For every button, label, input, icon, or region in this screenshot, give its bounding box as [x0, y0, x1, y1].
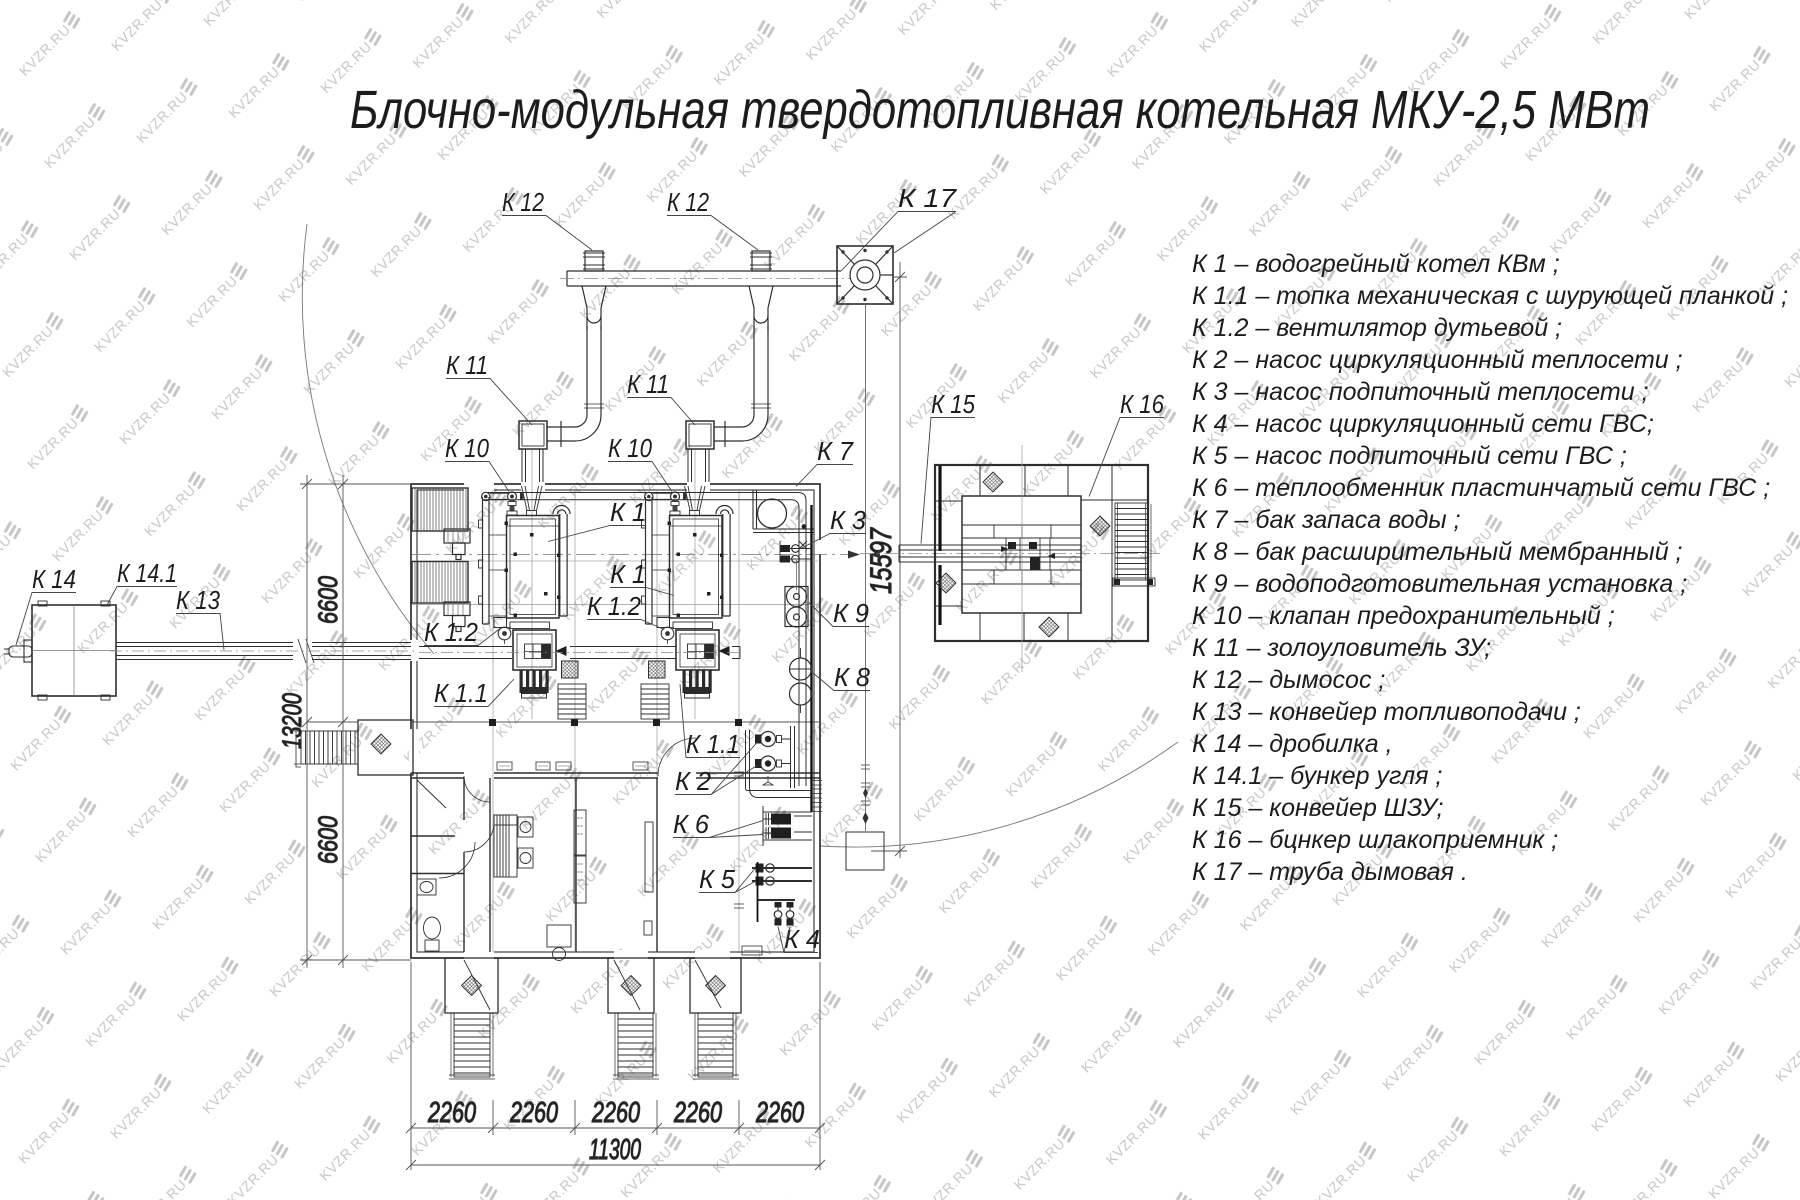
svg-text:К 11: К 11 [446, 350, 488, 380]
svg-text:К 13: К 13 [176, 585, 220, 615]
svg-text:К 8 – бак расширительный ме: К 8 – бак расширительный мембранный ; [1192, 538, 1683, 566]
svg-text:К 14.1 – бункер угля ;: К 14.1 – бункер угля ; [1192, 762, 1442, 790]
svg-text:К 1.1: К 1.1 [434, 678, 488, 708]
svg-text:К 10: К 10 [445, 433, 489, 463]
svg-text:К 16 – бцнкер шлакоприемник: К 16 – бцнкер шлакоприемник ; [1192, 826, 1558, 854]
svg-text:К 1.1: К 1.1 [686, 729, 740, 759]
svg-text:К 12: К 12 [502, 187, 544, 217]
svg-text:К 7: К 7 [817, 436, 854, 466]
svg-text:6600: 6600 [313, 816, 343, 864]
svg-text:К 3: К 3 [830, 505, 867, 535]
svg-text:К 2 – насос циркуляционный: К 2 – насос циркуляционный теплосети ; [1192, 346, 1683, 374]
svg-text:К 4 – насос циркуляционный: К 4 – насос циркуляционный сети ГВС; [1192, 410, 1654, 438]
svg-text:К 10: К 10 [608, 433, 652, 463]
svg-text:К 2: К 2 [675, 766, 712, 796]
svg-text:К 11: К 11 [627, 369, 669, 399]
svg-text:2260: 2260 [509, 1097, 558, 1129]
svg-text:К 15: К 15 [931, 389, 975, 419]
svg-text:2260: 2260 [755, 1097, 804, 1129]
svg-text:К 6 – теплообменник пластин: К 6 – теплообменник пластинчатый сети ГВ… [1192, 474, 1770, 502]
svg-text:К 3 – насос подпиточный теп: К 3 – насос подпиточный теплосети ; [1192, 378, 1649, 406]
svg-text:К 12: К 12 [667, 187, 709, 217]
svg-text:К 9 – водоподготовительная: К 9 – водоподготовительная установка ; [1192, 570, 1687, 598]
svg-text:К 13 – конвейер топливопода: К 13 – конвейер топливоподачи ; [1192, 698, 1581, 726]
svg-text:К 14.1: К 14.1 [117, 558, 177, 588]
svg-text:11300: 11300 [589, 1134, 641, 1166]
svg-text:13200: 13200 [277, 693, 307, 749]
svg-text:К 12 – дымосос ;: К 12 – дымосос ; [1192, 666, 1385, 694]
svg-text:К 14: К 14 [32, 564, 76, 594]
svg-text:К 7 – бак запаса воды ;: К 7 – бак запаса воды ; [1192, 506, 1461, 534]
svg-text:К 11 – золоуловитель ЗУ;: К 11 – золоуловитель ЗУ; [1192, 634, 1491, 662]
svg-text:6600: 6600 [313, 576, 343, 624]
svg-text:К 17: К 17 [898, 183, 958, 213]
svg-text:15597: 15597 [865, 527, 898, 594]
svg-text:К 1: К 1 [610, 497, 646, 527]
svg-text:2260: 2260 [427, 1097, 476, 1129]
svg-text:К 15 – конвейер ШЗУ;: К 15 – конвейер ШЗУ; [1192, 794, 1443, 822]
svg-text:К 5: К 5 [699, 864, 736, 894]
svg-text:К 1: К 1 [610, 559, 646, 589]
svg-text:К 1.2: К 1.2 [587, 591, 641, 621]
svg-text:К 9: К 9 [833, 598, 869, 628]
svg-text:К 14 – дробилка ,: К 14 – дробилка , [1192, 730, 1393, 758]
svg-text:К 8: К 8 [834, 662, 871, 692]
svg-text:К 17 – труба дымовая .: К 17 – труба дымовая . [1192, 858, 1468, 886]
svg-text:К 6: К 6 [673, 809, 710, 839]
svg-text:К 1 – водогрейный котел КВм: К 1 – водогрейный котел КВм ; [1192, 250, 1560, 278]
svg-text:К 16: К 16 [1120, 389, 1164, 419]
svg-text:Блочно-модульная твердотопливн: Блочно-модульная твердотопливная котельн… [350, 80, 1650, 140]
svg-text:К 1.2: К 1.2 [424, 617, 478, 647]
svg-text:К 10 – клапан предохранител: К 10 – клапан предохранительный ; [1192, 602, 1615, 630]
svg-text:2260: 2260 [673, 1097, 722, 1129]
svg-text:К 1.1 – топка механическая: К 1.1 – топка механическая с шурующей пл… [1192, 282, 1788, 310]
svg-text:2260: 2260 [591, 1097, 640, 1129]
svg-text:К 1.2 – вентилятор дутьевой: К 1.2 – вентилятор дутьевой ; [1192, 314, 1562, 342]
svg-text:К 5 – насос подпиточный сет: К 5 – насос подпиточный сети ГВС ; [1192, 442, 1627, 470]
